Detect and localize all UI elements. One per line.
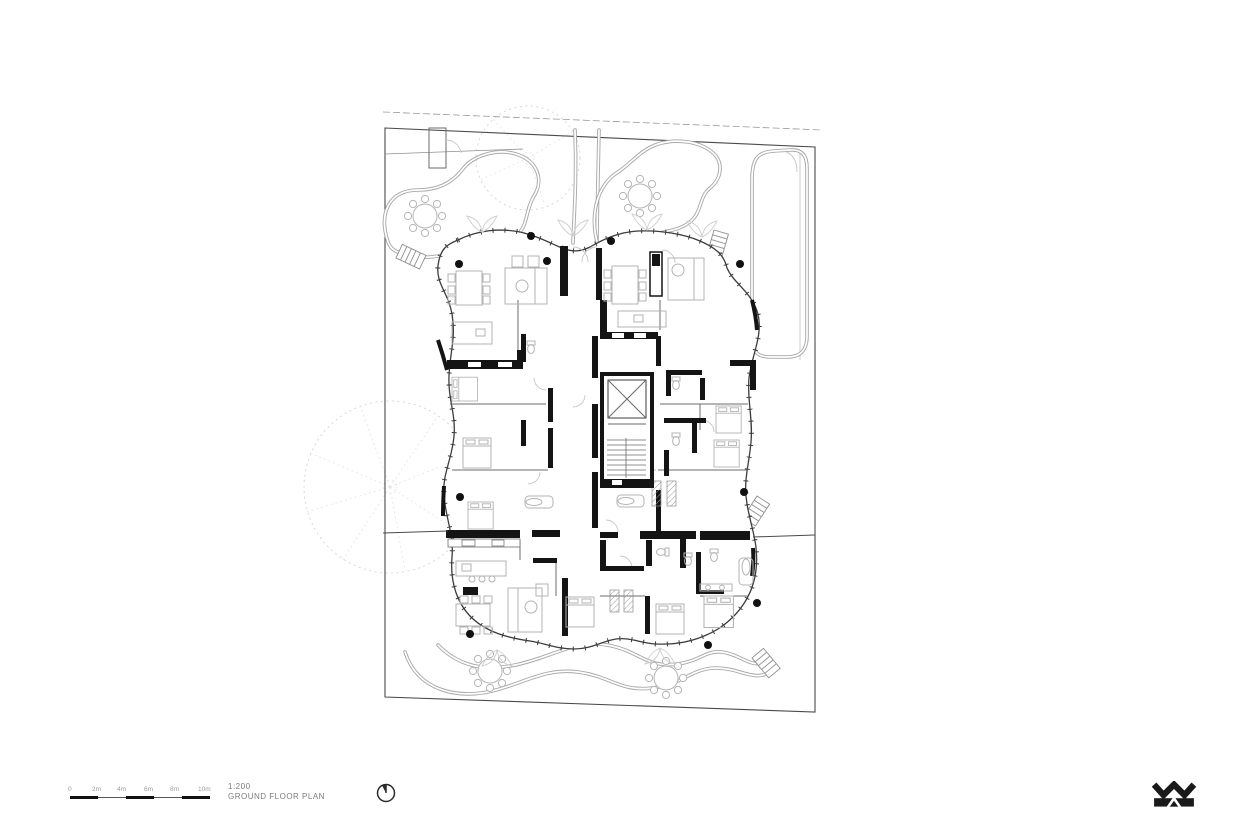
drawing-title: GROUND FLOOR PLAN [228,792,325,802]
drawing-scale: 1:200 [228,782,325,792]
scale-bar-label: 2m [92,786,101,793]
scale-bar-label: 4m [117,786,126,793]
elevator-core [602,374,652,486]
scale-bar-label: 0 [68,786,72,793]
drawing-sheet: 0 2m 4m 6m 8m 10m 1:200 GROUND FLOOR PLA… [0,0,1260,838]
floor-plan-drawing [0,0,1260,838]
scale-bar-label: 8m [170,786,179,793]
scale-bar-label: 10m [198,786,211,793]
title-block: 1:200 GROUND FLOOR PLAN [228,782,325,801]
scale-bar: 0 2m 4m 6m 8m 10m [70,796,210,799]
scale-bar-label: 6m [144,786,153,793]
north-arrow-icon [374,780,398,809]
wm-logo [1152,781,1196,812]
